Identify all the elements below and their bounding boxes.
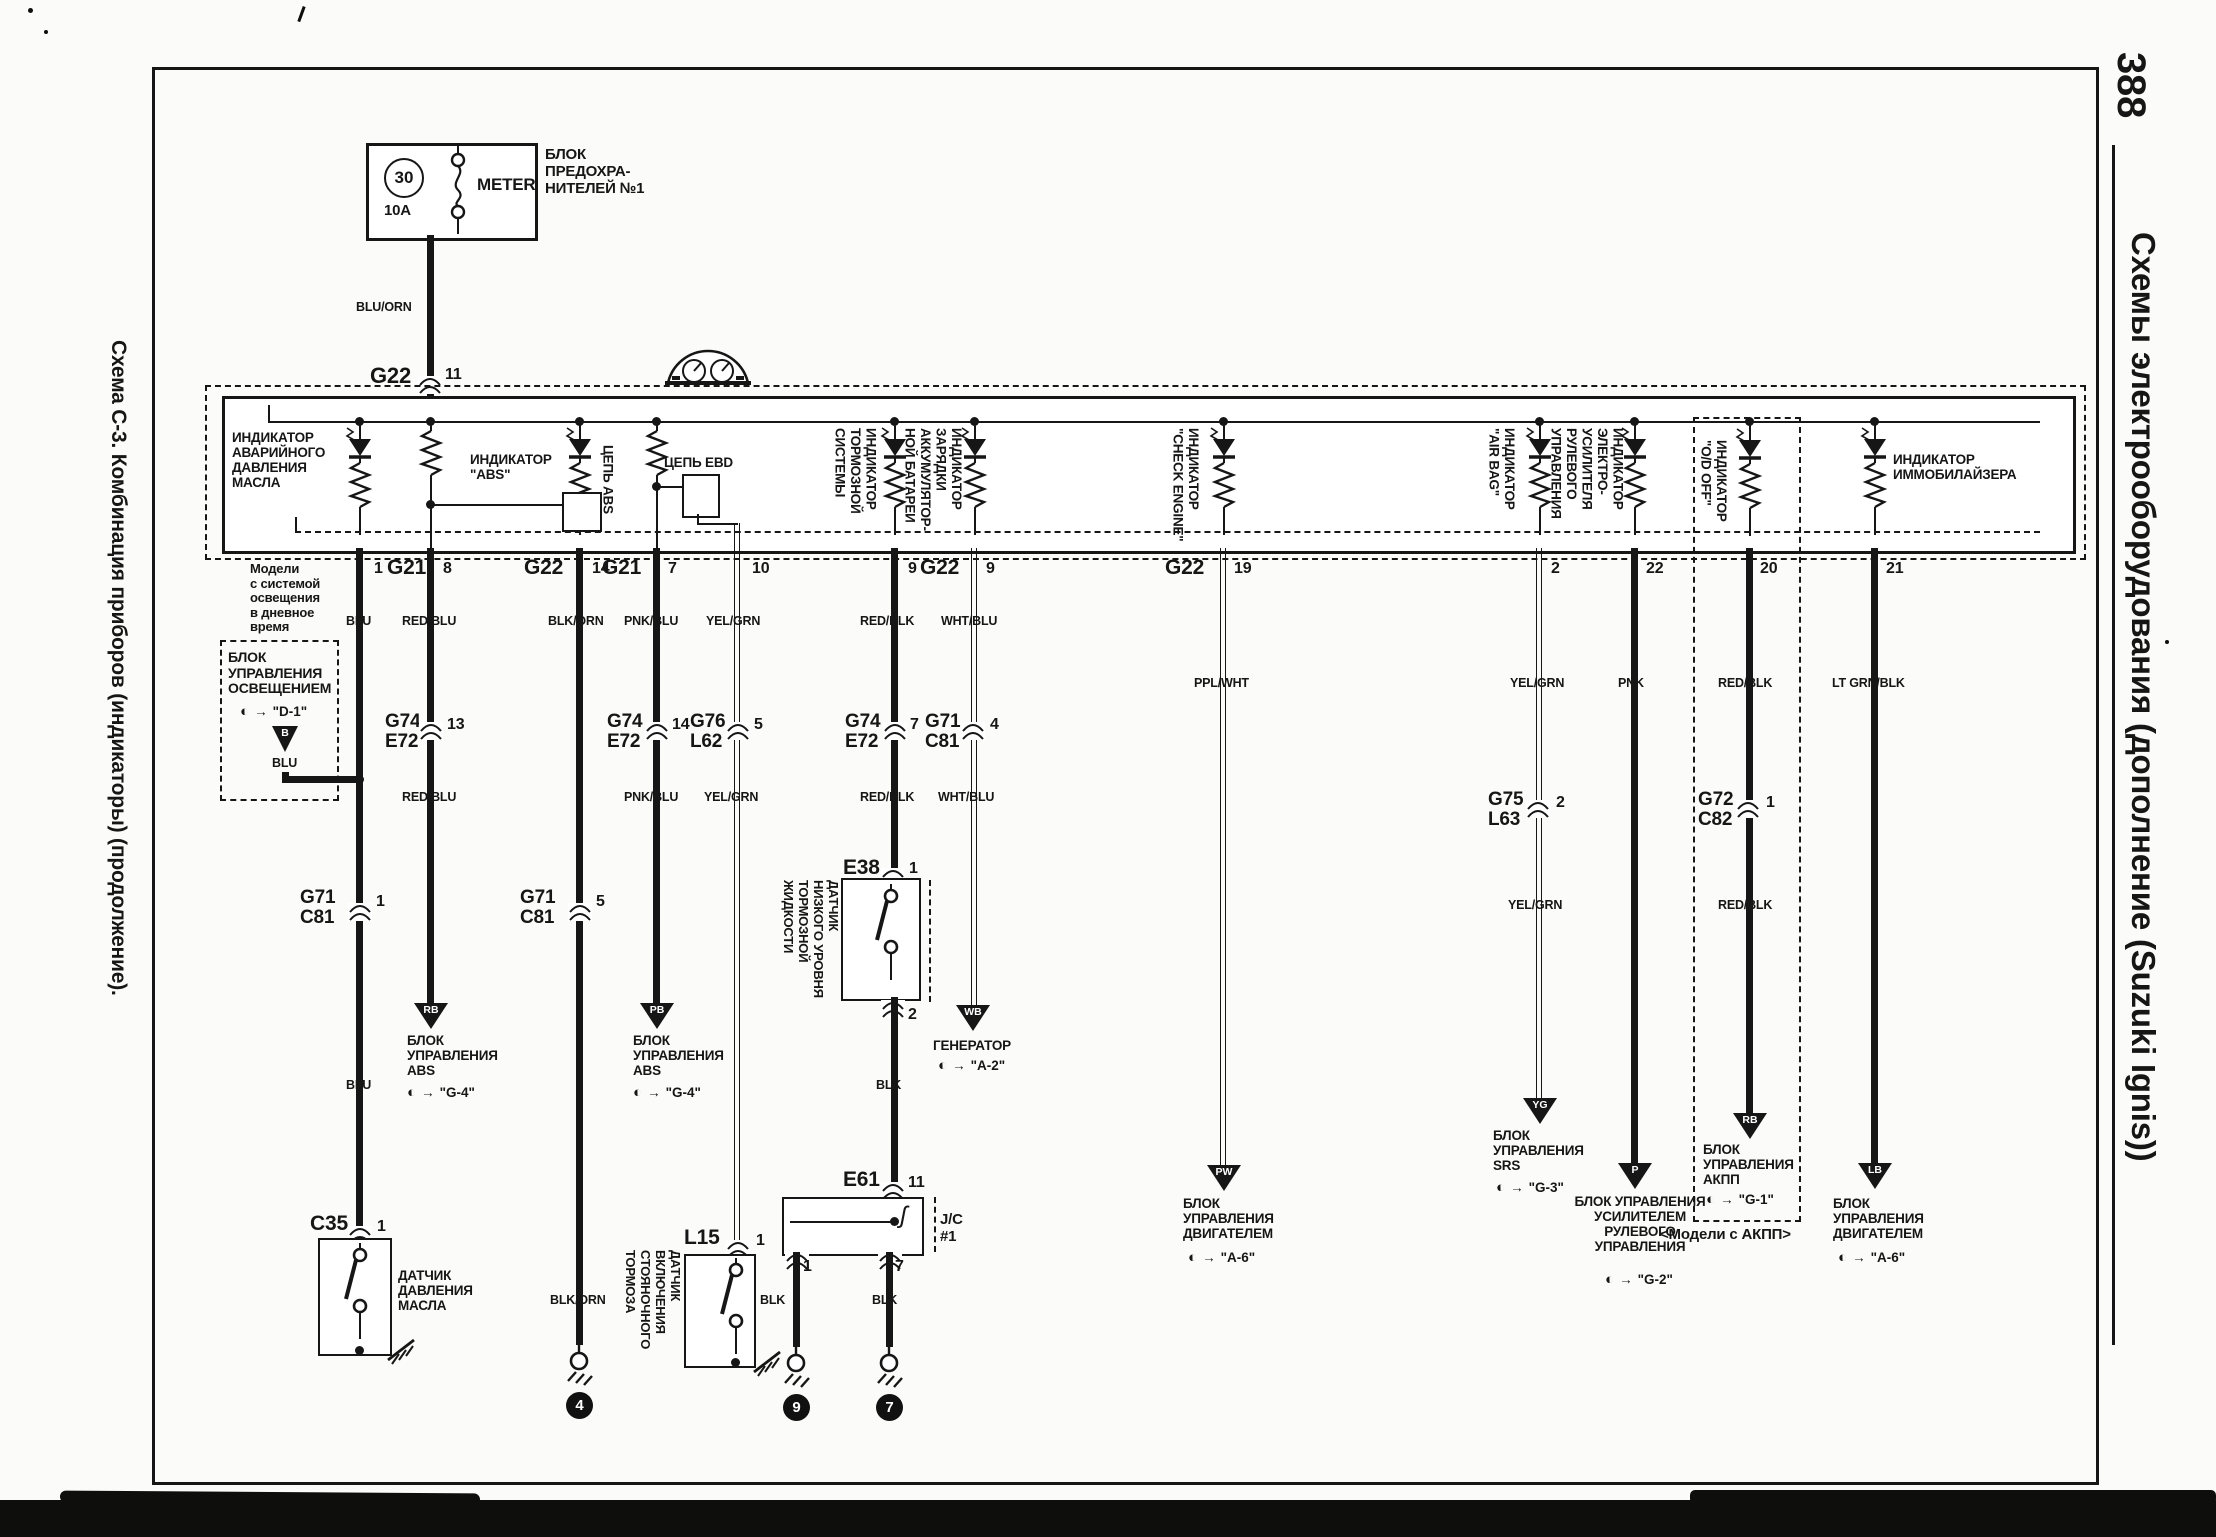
pin-label: 1 bbox=[377, 1218, 386, 1236]
scan-artifact bbox=[44, 30, 48, 34]
scan-artifact bbox=[1690, 1490, 2216, 1504]
resistor bbox=[416, 423, 446, 493]
switch-icon bbox=[343, 1243, 377, 1343]
abs-link-line bbox=[431, 504, 566, 506]
pin-label: 20 bbox=[1760, 560, 1777, 578]
connector-g72c82: G72C82 bbox=[1698, 790, 1733, 830]
pin-label: 5 bbox=[596, 893, 605, 911]
connector-label: E38 bbox=[843, 856, 880, 880]
connector-icon bbox=[961, 722, 985, 740]
pin-label: 13 bbox=[447, 716, 464, 734]
page-ref: "G-4" bbox=[440, 1085, 475, 1100]
wire-code: LB bbox=[1858, 1164, 1892, 1176]
conn-name: C82 bbox=[1698, 809, 1732, 830]
pin-stub bbox=[1631, 548, 1638, 602]
pin-label: 1 bbox=[376, 893, 385, 911]
conn-name: E72 bbox=[607, 731, 640, 752]
connector-g74e72: G74E72 bbox=[845, 712, 880, 752]
dest-ecm-ref: ◐→"A-6" bbox=[1188, 1250, 1255, 1265]
switch-icon bbox=[874, 884, 908, 984]
page-ref-icon: ◐ bbox=[1188, 1250, 1197, 1265]
wire-color: PNK/BLU bbox=[624, 614, 678, 628]
ground-icon bbox=[564, 1344, 594, 1390]
wire-code: PW bbox=[1207, 1166, 1241, 1178]
pin-stub bbox=[891, 548, 898, 602]
dest-eps-ref: ◐→"G-2" bbox=[1605, 1272, 1673, 1287]
conn-name: C81 bbox=[925, 731, 959, 752]
ground-number: 4 bbox=[566, 1392, 593, 1419]
wire-yelgrn bbox=[734, 602, 740, 1254]
brake-indicator-label: ИНДИКАТОР ТОРМОЗНОЙ СИСТЕМЫ bbox=[832, 428, 879, 514]
oil-sensor-label: ДАТЧИК ДАВЛЕНИЯ МАСЛА bbox=[398, 1268, 473, 1313]
margin-rule bbox=[2112, 145, 2115, 1345]
pin-label: 21 bbox=[1886, 560, 1903, 578]
dest-ecm2-label: БЛОК УПРАВЛЕНИЯ ДВИГАТЕЛЕМ bbox=[1833, 1196, 1924, 1241]
charge-indicator-label: ИНДИКАТОР ЗАРЯДКИ АККУМУЛЯТОР- НОЙ БАТАР… bbox=[902, 428, 964, 531]
abs-indicator-label: ИНДИКАТОР "ABS" bbox=[470, 452, 552, 482]
abs-circuit-label: ЦЕПЬ ABS bbox=[600, 445, 616, 514]
wire-color: BLK bbox=[876, 1078, 901, 1092]
scan-artifact bbox=[2165, 640, 2169, 644]
ref-arrow: → bbox=[1510, 1180, 1524, 1195]
pin-label: 1 bbox=[909, 860, 918, 878]
connector-label: G21 bbox=[602, 556, 641, 580]
ref-arrow: → bbox=[1202, 1250, 1216, 1265]
pin-stub bbox=[1536, 548, 1542, 602]
junction-dot bbox=[652, 482, 661, 491]
junction-dot bbox=[355, 775, 364, 784]
scanned-wiring-diagram-page: Схема С-3. Комбинация приборов (индикато… bbox=[0, 0, 2216, 1537]
conn-name: G71 bbox=[520, 887, 555, 908]
wire-blk bbox=[793, 1252, 800, 1347]
wire-redblk2 bbox=[1746, 602, 1753, 1115]
feed-pin: 11 bbox=[445, 366, 462, 384]
park-brake-label: ДАТЧИК ВКЛЮЧЕНИЯ СТОЯНОЧНОГО ТОРМОЗА bbox=[622, 1250, 682, 1349]
ground-number: 9 bbox=[783, 1394, 810, 1421]
conn-name: G74 bbox=[607, 711, 642, 732]
connector-label: L15 bbox=[684, 1226, 720, 1250]
airbag-indicator-label: ИНДИКАТОР "AIR BAG" bbox=[1486, 428, 1517, 510]
wire-color: BLK bbox=[760, 1293, 785, 1307]
conn-name: G71 bbox=[300, 887, 335, 908]
pin-label: 1 bbox=[756, 1232, 765, 1250]
wire-pplwht bbox=[1220, 602, 1226, 1167]
wire-code: YG bbox=[1523, 1099, 1557, 1111]
dest-ecm2-ref: ◐→"A-6" bbox=[1838, 1250, 1905, 1265]
pin-stub bbox=[971, 548, 977, 602]
wire-code: P bbox=[1618, 1164, 1652, 1176]
ref-arrow: → bbox=[647, 1085, 661, 1100]
connector-g75l63: G75L63 bbox=[1488, 790, 1523, 830]
connector-icon bbox=[419, 722, 443, 740]
connector-label: G22 bbox=[524, 556, 563, 580]
instrument-cluster-icon bbox=[664, 350, 752, 388]
page-ref-icon: ◐ bbox=[407, 1085, 416, 1100]
wire-elbow bbox=[282, 776, 363, 783]
ground-number: 7 bbox=[876, 1394, 903, 1421]
brake-fluid-label: ДАТЧИК НИЗКОГО УРОВНЯ ТОРМОЗНОЙ ЖИДКОСТИ bbox=[780, 880, 840, 998]
ground-icon bbox=[874, 1346, 904, 1392]
pin-label: 9 bbox=[986, 560, 995, 578]
ref-arrow: → bbox=[1619, 1272, 1633, 1287]
wire-yelgrn2 bbox=[1536, 602, 1542, 1100]
scan-artifact bbox=[0, 1500, 2216, 1537]
pin-stub bbox=[1871, 548, 1878, 602]
page-ref: "D-1" bbox=[273, 704, 308, 719]
pin-label: 1 bbox=[1766, 794, 1775, 812]
connector-g74e72: G74E72 bbox=[607, 712, 642, 752]
ref-arrow: → bbox=[1720, 1192, 1734, 1207]
top-bus-tick bbox=[268, 405, 270, 423]
pin-label: 4 bbox=[990, 716, 999, 734]
fuse-rating: 10A bbox=[384, 202, 411, 219]
left-margin-title: Схема С-3. Комбинация приборов (индикато… bbox=[106, 340, 130, 996]
wire-code: B bbox=[278, 727, 292, 739]
dest-arrow-ecm2: LB bbox=[1858, 1163, 1892, 1189]
conn-name: G74 bbox=[845, 711, 880, 732]
wire-ltgrnblk bbox=[1871, 602, 1878, 1165]
connector-label: G22 bbox=[920, 556, 959, 580]
dest-abs-ref: ◐→"G-4" bbox=[407, 1085, 475, 1100]
connector-icon bbox=[726, 722, 750, 740]
dest-arrow-abs: RB bbox=[414, 1003, 448, 1029]
wire-pnk bbox=[1631, 602, 1638, 1165]
pin-label: 7 bbox=[895, 1258, 904, 1276]
ground-icon bbox=[752, 1348, 782, 1378]
wire-color: PNK/BLU bbox=[624, 790, 678, 804]
feed-wire-color: BLU/ORN bbox=[356, 300, 412, 314]
pin-label: 8 bbox=[443, 560, 452, 578]
scan-artifact bbox=[28, 8, 33, 13]
page-ref: "G-4" bbox=[666, 1085, 701, 1100]
pin-stub bbox=[653, 548, 660, 602]
wire-segment bbox=[697, 523, 738, 525]
jc-internal-line bbox=[790, 1221, 895, 1223]
ground-num-text: 7 bbox=[885, 1399, 893, 1416]
fuse-name: METER bbox=[477, 175, 536, 195]
connector-dash bbox=[934, 1197, 936, 1252]
jc-label: J/C #1 bbox=[940, 1212, 963, 1246]
dest-abs2-ref: ◐→"G-4" bbox=[633, 1085, 701, 1100]
connector-icon bbox=[1736, 800, 1760, 818]
fuse-block-label: БЛОК ПРЕДОХРА- НИТЕЛЕЙ №1 bbox=[545, 147, 644, 197]
pin-stub bbox=[1220, 548, 1226, 602]
pin-label: 11 bbox=[908, 1174, 925, 1192]
dest-arrow-ecm: PW bbox=[1207, 1165, 1241, 1191]
wire-color: RED/BLK bbox=[1718, 898, 1772, 912]
switch-icon bbox=[719, 1258, 753, 1358]
junction-dot bbox=[355, 1346, 364, 1355]
conn-name: L63 bbox=[1488, 809, 1520, 830]
pin-label: 2 bbox=[908, 1006, 917, 1024]
ref-arrow: → bbox=[1852, 1250, 1866, 1265]
dest-generator-ref: ◐→"A-2" bbox=[938, 1058, 1005, 1073]
conn-name: L62 bbox=[690, 731, 722, 752]
conn-name: C81 bbox=[520, 907, 554, 928]
scan-artifact bbox=[297, 6, 305, 22]
wire-color: RED/BLU bbox=[402, 790, 456, 804]
page-number: 388 bbox=[2108, 52, 2154, 118]
conn-name: E72 bbox=[385, 731, 418, 752]
page-ref: "A-6" bbox=[1871, 1250, 1906, 1265]
wire-blk bbox=[891, 997, 898, 1197]
pin-label: 14 bbox=[672, 716, 689, 734]
conn-name: G74 bbox=[385, 711, 420, 732]
connector-icon bbox=[568, 903, 592, 921]
oil-indicator-led bbox=[345, 423, 375, 535]
page-ref-icon: ◐ bbox=[938, 1058, 947, 1073]
ref-arrow: → bbox=[421, 1085, 435, 1100]
ground-icon bbox=[386, 1336, 416, 1366]
scan-artifact bbox=[0, 1516, 95, 1537]
page-ref-icon: ◐ bbox=[1605, 1272, 1614, 1287]
wire-color: YEL/GRN bbox=[704, 790, 758, 804]
pin-stub bbox=[734, 548, 740, 602]
wire-color: YEL/GRN bbox=[1508, 898, 1562, 912]
ground-icon bbox=[781, 1346, 811, 1392]
page-ref-icon: ◐ bbox=[1496, 1180, 1505, 1195]
pin-label: 7 bbox=[668, 560, 677, 578]
light-control-title: БЛОК УПРАВЛЕНИЯ ОСВЕЩЕНИЕМ bbox=[228, 650, 331, 697]
check-engine-indicator-label: ИНДИКАТОР "CHECK ENGINE" bbox=[1170, 428, 1201, 542]
pin-label: 9 bbox=[908, 560, 917, 578]
jc-curl: ʃ bbox=[900, 1202, 907, 1230]
page-ref-icon: ◐ bbox=[633, 1085, 642, 1100]
abs-circuit-box bbox=[562, 492, 602, 532]
wire-segment bbox=[734, 523, 740, 548]
dest-arrow-eps: P bbox=[1618, 1163, 1652, 1189]
page-ref-icon: ◐ bbox=[1838, 1250, 1847, 1265]
wire-blkorn bbox=[576, 602, 583, 1345]
fuse-number-circle: 30 bbox=[384, 158, 424, 198]
page-ref-icon: ◐ bbox=[1706, 1192, 1715, 1207]
dest-abs2-label: БЛОК УПРАВЛЕНИЯ ABS bbox=[633, 1033, 724, 1078]
wire-code: WB bbox=[956, 1006, 990, 1018]
check-engine-indicator-led bbox=[1209, 423, 1239, 535]
pin-stub bbox=[1746, 548, 1753, 602]
fuse-number: 30 bbox=[395, 168, 414, 188]
conn-name: C81 bbox=[300, 907, 334, 928]
connector-label: G21 bbox=[387, 556, 426, 580]
ebd-circuit-label: ЦЕПЬ EBD bbox=[664, 455, 733, 470]
wire-color: WHT/BLU bbox=[941, 614, 997, 628]
connector-g71c81: G71C81 bbox=[300, 888, 335, 928]
connector-icon bbox=[883, 722, 907, 740]
light-control-ref: ◐→"D-1" bbox=[240, 704, 307, 719]
immobilizer-indicator-label: ИНДИКАТОР ИММОБИЛАЙЗЕРА bbox=[1893, 452, 2016, 482]
connector-icon bbox=[1526, 800, 1550, 818]
connector-g74e72: G74E72 bbox=[385, 712, 420, 752]
dest-arrow-akpp: RB bbox=[1733, 1113, 1767, 1139]
page-ref: "G-1" bbox=[1739, 1192, 1774, 1207]
ground-num-text: 9 bbox=[792, 1399, 800, 1416]
connector-g76l62: G76L62 bbox=[690, 712, 725, 752]
dest-akpp-ref: ◐→"G-1" bbox=[1706, 1192, 1774, 1207]
ground-num-text: 4 bbox=[575, 1397, 583, 1414]
oil-indicator-label: ИНДИКАТОР АВАРИЙНОГО ДАВЛЕНИЯ МАСЛА bbox=[232, 430, 325, 490]
connector-label: C35 bbox=[310, 1212, 348, 1236]
conn-name: E72 bbox=[845, 731, 878, 752]
page-ref: "G-2" bbox=[1638, 1272, 1673, 1287]
connector-icon bbox=[348, 903, 372, 921]
page-ref: "A-6" bbox=[1221, 1250, 1256, 1265]
at-models-note: <Модели с АКПП> bbox=[1660, 1226, 1791, 1243]
right-margin-title: Схемы электрооборудования (дополнение (S… bbox=[2124, 232, 2162, 1161]
pin-label: 10 bbox=[752, 560, 769, 578]
junction-dot bbox=[426, 500, 435, 509]
page-ref-icon: ◐ bbox=[240, 704, 249, 719]
connector-g71c81: G71C81 bbox=[925, 712, 960, 752]
pin-label: 22 bbox=[1646, 560, 1663, 578]
conn-name: G72 bbox=[1698, 789, 1733, 810]
dest-generator-label: ГЕНЕРАТОР bbox=[933, 1038, 1011, 1053]
pin-label: 2 bbox=[1556, 794, 1565, 812]
connector-label: E61 bbox=[843, 1168, 880, 1192]
page-ref: "G-3" bbox=[1529, 1180, 1564, 1195]
wire-color: BLU bbox=[346, 1078, 371, 1092]
wire-code: RB bbox=[1733, 1114, 1767, 1126]
pin-label: 19 bbox=[1234, 560, 1251, 578]
dest-abs-label: БЛОК УПРАВЛЕНИЯ ABS bbox=[407, 1033, 498, 1078]
dest-srs-label: БЛОК УПРАВЛЕНИЯ SRS bbox=[1493, 1128, 1584, 1173]
pin-label: 1 bbox=[803, 1258, 812, 1276]
wire-color: RED/BLK bbox=[860, 614, 914, 628]
junction-dot bbox=[890, 1217, 899, 1226]
pin-stub bbox=[427, 548, 434, 602]
feed-wire bbox=[427, 235, 434, 396]
ref-arrow: → bbox=[952, 1058, 966, 1073]
wire-color: BLK bbox=[872, 1293, 897, 1307]
connector-icon bbox=[645, 722, 669, 740]
wire-color: BLK/ORN bbox=[550, 1293, 606, 1307]
connector-dash bbox=[929, 880, 931, 1002]
pin-label: 1 bbox=[374, 560, 383, 578]
ref-arrow: → bbox=[254, 704, 268, 719]
junction-dot bbox=[731, 1358, 740, 1367]
conn-name: G71 bbox=[925, 711, 960, 732]
pin-label: 5 bbox=[754, 716, 763, 734]
conn-name: G75 bbox=[1488, 789, 1523, 810]
pin-stub bbox=[576, 548, 583, 602]
dest-arrow-generator: WB bbox=[956, 1005, 990, 1031]
connector-label: G22 bbox=[1165, 556, 1204, 580]
wire-color: WHT/BLU bbox=[938, 790, 994, 804]
ebd-circuit-box bbox=[682, 474, 720, 518]
connector-g71c81: G71C81 bbox=[520, 888, 555, 928]
wire-color: LT GRN/BLK bbox=[1832, 676, 1905, 690]
dest-arrow-abs2: PB bbox=[640, 1003, 674, 1029]
page-ref: "A-2" bbox=[971, 1058, 1006, 1073]
wire-code: PB bbox=[640, 1004, 674, 1016]
charge-indicator-led bbox=[960, 423, 990, 535]
pin-stub bbox=[356, 548, 363, 602]
wire-color: BLU bbox=[272, 756, 297, 770]
pin-label: 2 bbox=[1551, 560, 1560, 578]
dest-srs-ref: ◐→"G-3" bbox=[1496, 1180, 1564, 1195]
conn-name: G76 bbox=[690, 711, 725, 732]
immobilizer-indicator-led bbox=[1860, 423, 1890, 535]
dest-akpp-label: БЛОК УПРАВЛЕНИЯ АКПП bbox=[1703, 1142, 1794, 1187]
eps-indicator-label: ИНДИКАТОР ЭЛЕКТРО- УСИЛИТЕЛЯ РУЛЕВОГО УП… bbox=[1548, 428, 1626, 519]
dest-ecm-label: БЛОК УПРАВЛЕНИЯ ДВИГАТЕЛЕМ bbox=[1183, 1196, 1274, 1241]
pin-label: 7 bbox=[910, 716, 919, 734]
wire-code-arrow: B bbox=[272, 726, 298, 752]
bottom-line-tick bbox=[295, 517, 297, 533]
fuse-icon bbox=[450, 146, 466, 234]
drl-note: Модели с системой освещения в дневное вр… bbox=[250, 562, 320, 635]
dest-arrow-srs: YG bbox=[1523, 1098, 1557, 1124]
wire-color: RED/BLK bbox=[860, 790, 914, 804]
wire-whtblu bbox=[971, 602, 977, 1007]
wire-code: RB bbox=[414, 1004, 448, 1016]
wire-segment bbox=[656, 493, 658, 548]
